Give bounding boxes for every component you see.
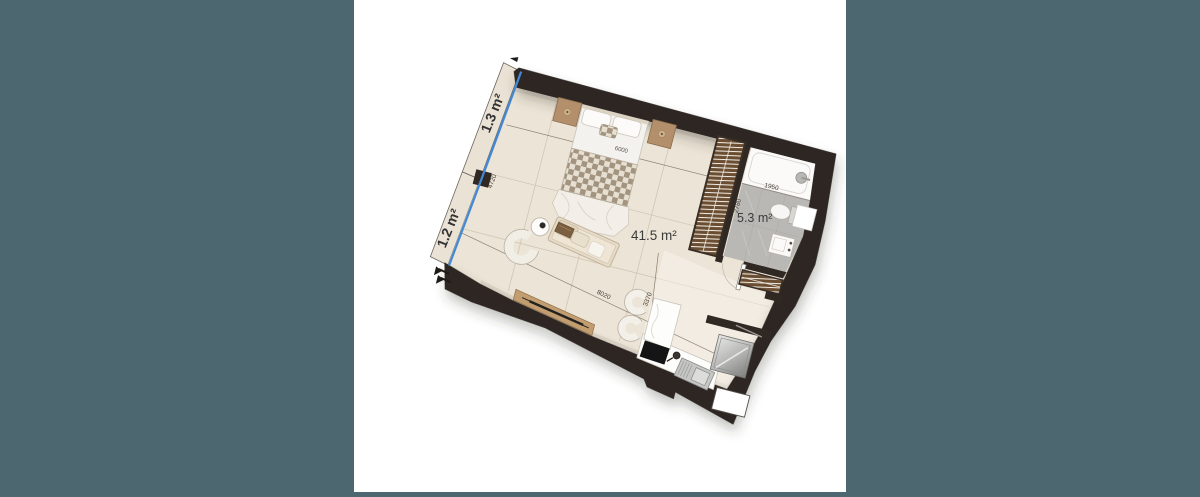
svg-text:5.3 m²: 5.3 m²	[737, 211, 772, 225]
svg-text:41.5 m²: 41.5 m²	[631, 228, 677, 243]
